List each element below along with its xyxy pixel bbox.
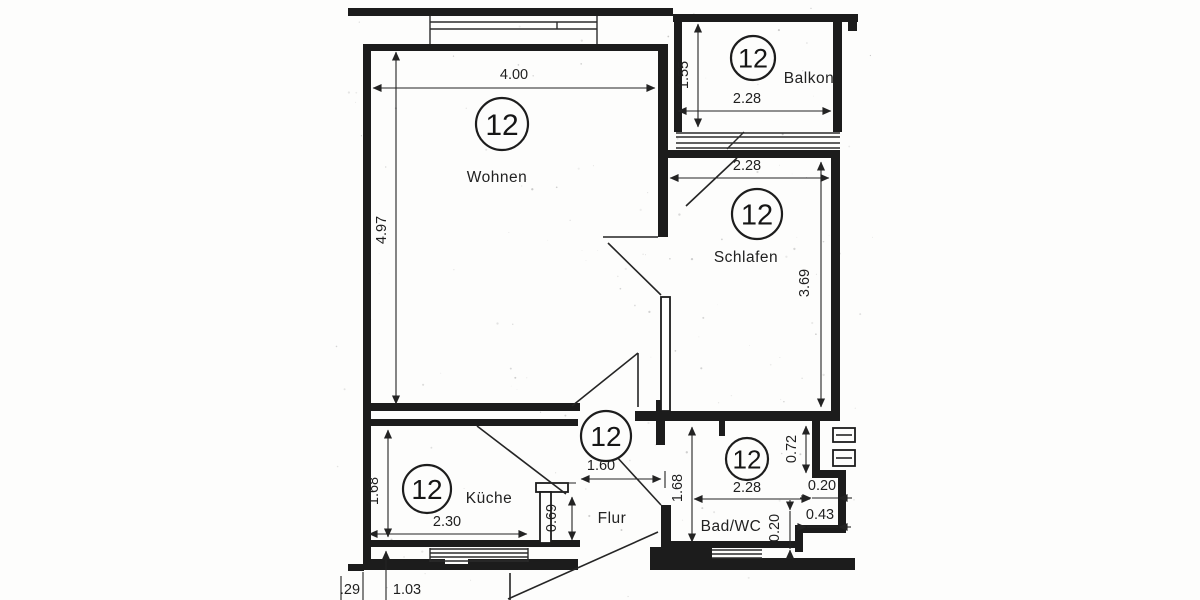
dim-balkon-width: 2.28 — [678, 91, 831, 111]
floorplan-image: 4.00 4.97 1.55 2.28 2.28 3.69 1.68 2.30 — [0, 0, 1200, 600]
wall-schlafen-bottom — [635, 411, 840, 421]
dim-schlafen-height: 3.69 — [797, 162, 821, 407]
door-kueche — [477, 426, 566, 494]
unit-circle-balkon: 12 — [731, 36, 775, 80]
dim-badwc-height: 1.68 — [670, 427, 692, 542]
wall-bottom-right — [650, 558, 855, 570]
dim-label-wohnen-height: 4.97 — [374, 216, 390, 244]
floorplan-svg: 4.00 4.97 1.55 2.28 2.28 3.69 1.68 2.30 — [0, 0, 1200, 600]
unit-number-flur: 12 — [590, 421, 621, 452]
dim-label-badwc-height: 1.68 — [670, 474, 686, 502]
dim-entry: .29 1.03 — [340, 551, 421, 600]
wall-wohnen-top — [363, 44, 665, 51]
wall-badwc-right-upper — [812, 421, 820, 476]
wall-badwc-step-bottom — [800, 525, 846, 533]
door-wohnen-schlafen — [603, 237, 661, 295]
dim-label-entry-step: .29 — [340, 582, 360, 598]
dim-badwc-step-bottom: 0.20 — [767, 500, 790, 559]
unit-circle-kueche: 12 — [403, 465, 451, 513]
dim-label-wohnen-width: 4.00 — [500, 67, 528, 83]
dim-label-badwc-step-right: 0.43 — [806, 507, 834, 523]
wall-top-left — [348, 8, 673, 16]
dim-label-entry-width: 1.03 — [393, 582, 421, 598]
dim-label-balkon-width: 2.28 — [733, 91, 761, 107]
wall-badwc-step-left — [795, 525, 803, 552]
wall-flur-right-lower — [661, 505, 671, 548]
windows — [430, 16, 840, 562]
unit-circle-badwc: 12 — [726, 438, 768, 480]
dim-label-kueche-width: 2.30 — [433, 514, 461, 530]
dim-label-schlafen-height: 3.69 — [797, 269, 813, 297]
dim-label-schlafen-width: 2.28 — [733, 158, 761, 174]
unit-circle-wohnen: 12 — [476, 98, 528, 150]
dim-label-badwc-step-bottom: 0.20 — [767, 514, 783, 542]
room-label-schlafen: Schlafen — [714, 249, 778, 266]
room-label-balkon: Balkon — [784, 70, 834, 87]
room-label-flur: Flur — [598, 510, 627, 527]
kueche-niche-wall-h — [536, 483, 568, 492]
unit-circle-schlafen: 12 — [732, 189, 782, 239]
wall-kueche-top — [363, 419, 578, 426]
dim-label-badwc-step-top: 0.20 — [808, 478, 836, 494]
dim-label-kueche-niche: 0.69 — [544, 504, 560, 532]
unit-number-kueche: 12 — [411, 474, 442, 505]
unit-number-wohnen: 12 — [485, 109, 518, 142]
wall-flur-bottom — [650, 547, 712, 559]
dim-label-balkon-depth: 1.55 — [676, 61, 692, 89]
wall-schlafen-top — [666, 150, 840, 158]
door-wohnen-flur — [572, 353, 638, 407]
room-label-kueche: Küche — [466, 490, 512, 507]
unit-circle-flur: 12 — [581, 411, 631, 461]
unit-number-balkon: 12 — [738, 44, 768, 74]
dimensions: 4.00 4.97 1.55 2.28 2.28 3.69 1.68 2.30 — [340, 24, 852, 600]
unit-number-schlafen: 12 — [741, 199, 773, 231]
dim-badwc-width: 2.28 — [694, 480, 810, 499]
wall-badwc-stub — [719, 421, 725, 436]
dim-label-kueche-height: 1.68 — [366, 477, 382, 505]
window-badwc — [712, 550, 762, 558]
wall-top-right — [673, 14, 858, 22]
unit-number-badwc: 12 — [733, 444, 762, 474]
wall-badwc-right-outer — [838, 470, 846, 532]
window-wohnen-top — [430, 16, 597, 44]
dim-schlafen-width: 2.28 — [670, 158, 829, 178]
dim-label-badwc-width: 2.28 — [733, 480, 761, 496]
dim-label-badwc-recess: 0.72 — [784, 435, 800, 463]
partition-wohnen-schlafen — [661, 297, 670, 411]
wall-balkon-right — [833, 22, 842, 132]
wall-wohnen-bottom — [363, 403, 580, 411]
dim-wohnen-width: 4.00 — [373, 67, 655, 88]
door-balkon-swing — [686, 158, 737, 206]
room-label-badwc: Bad/WC — [701, 518, 762, 535]
window-balkon-door — [676, 132, 840, 149]
wall-wohnen-right — [658, 44, 668, 237]
dim-kueche-width: 2.30 — [369, 514, 527, 534]
wall-schlafen-right — [831, 150, 840, 421]
wall-top-right-stub — [848, 22, 857, 31]
dim-wohnen-height: 4.97 — [374, 52, 396, 404]
dim-badwc-recess: 0.72 — [784, 426, 806, 473]
room-label-wohnen: Wohnen — [467, 169, 527, 186]
wall-bottom-left-step — [348, 564, 364, 571]
